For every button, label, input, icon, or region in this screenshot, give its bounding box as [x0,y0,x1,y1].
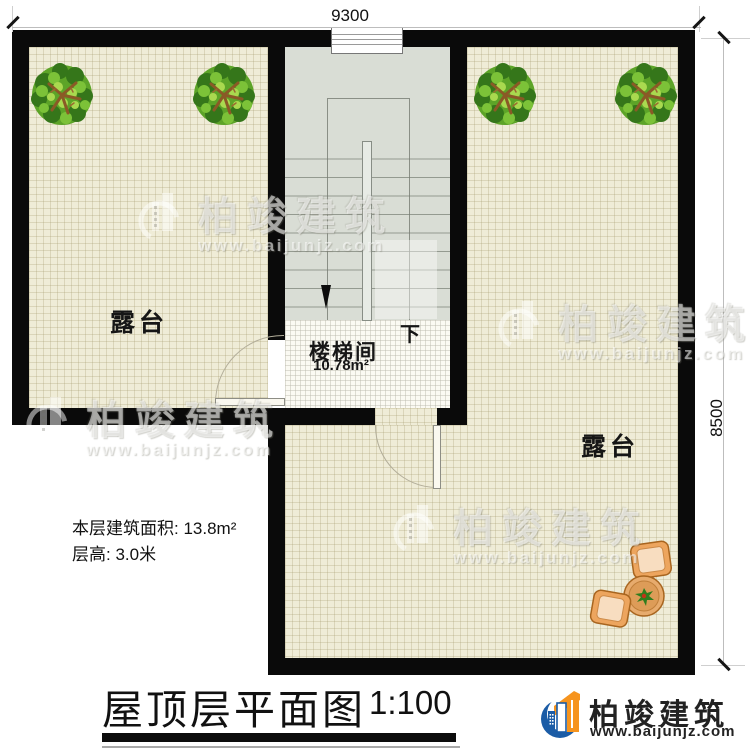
stair-direction-label: 下 [400,318,420,347]
tree-icon [30,63,94,127]
company-url: www.baijunjz.com [590,723,735,740]
wall-stairwell-right [450,47,467,425]
wall-left [12,30,29,425]
tree-icon [192,63,256,127]
wall-lower-left [268,408,285,675]
title-underline-thin [102,746,460,748]
window-icon [331,27,403,54]
stair-down-arrow-icon [321,285,331,309]
dimension-line-right [723,38,724,666]
wall-stairwell-left [268,47,285,340]
page-title: 屋顶层平面图 [102,676,366,736]
stairwell-area-value: 10.78m² [313,357,369,374]
wall-bottom [268,658,695,675]
floor-info: 本层建筑面积: 13.8m² 层高: 3.0米 [72,516,236,568]
door-passage-floor [375,408,437,425]
left-terrace-label: 露台 [110,303,168,339]
left-terrace-door-leaf [215,398,285,406]
tree-icon [614,63,678,127]
dimension-top-value: 9300 [300,6,400,26]
company-logo-icon [540,686,588,742]
title-underline [102,733,456,742]
dimension-right-value: 8500 [707,378,727,458]
wall-left-terrace-bottom [12,408,268,425]
stair-landing [375,240,437,319]
stair-rail [362,141,372,321]
stairwell-door-leaf [433,425,441,489]
watermark-url: www.baijunjz.com [86,440,282,460]
drawing-scale: 1:100 [369,684,452,722]
dimension-line-top [12,27,701,28]
wall-stairwell-bottom-b [437,408,450,425]
right-terrace-label: 露台 [581,427,639,463]
floorplan-canvas: 露台 露台 楼梯间 10.78m² 下 本层建筑面积: 13.8m² 层高: 3… [0,0,750,756]
floor-area-text: 本层建筑面积: 13.8m² [72,516,236,542]
wall-stairwell-bottom-a [285,408,375,425]
tree-icon [473,63,537,127]
patio-table-chairs-icon [583,533,683,633]
floor-height-text: 层高: 3.0米 [72,542,236,568]
